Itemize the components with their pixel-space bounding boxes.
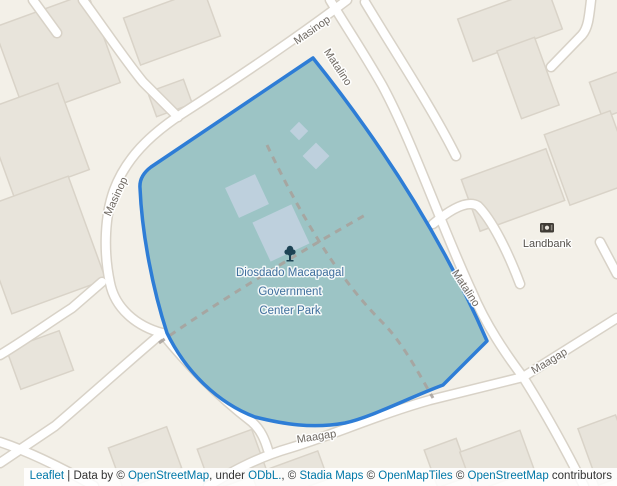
- openstreetmap-link[interactable]: OpenStreetMap: [468, 470, 549, 482]
- attribution-text: ©: [453, 470, 468, 482]
- attribution-text: contributors: [549, 470, 612, 482]
- attribution-text: , under: [209, 470, 248, 482]
- leaflet-link[interactable]: Leaflet: [30, 470, 65, 482]
- odbl-link[interactable]: ODbL.: [248, 470, 281, 482]
- bank-icon: [540, 223, 554, 233]
- attribution-text: | Data by ©: [64, 470, 128, 482]
- park-name-line1: Diosdado Macapagal: [236, 267, 344, 279]
- openmaptiles-link[interactable]: OpenMapTiles: [378, 470, 452, 482]
- openstreetmap-link[interactable]: OpenStreetMap: [128, 470, 209, 482]
- park-name-line2: Government: [258, 286, 322, 298]
- park-name-line3: Center Park: [259, 305, 321, 317]
- stadia-maps-link[interactable]: Stadia Maps: [299, 470, 363, 482]
- attribution-bar: Leaflet | Data by © OpenStreetMap, under…: [24, 468, 617, 486]
- map-canvas[interactable]: Masinop Matalino Masinop Matalino Maagap…: [0, 0, 617, 486]
- landbank-label: Landbank: [523, 238, 572, 250]
- attribution-text: ©: [363, 470, 378, 482]
- leaflet-map[interactable]: Masinop Matalino Masinop Matalino Maagap…: [0, 0, 617, 486]
- attribution-text: , ©: [281, 470, 299, 482]
